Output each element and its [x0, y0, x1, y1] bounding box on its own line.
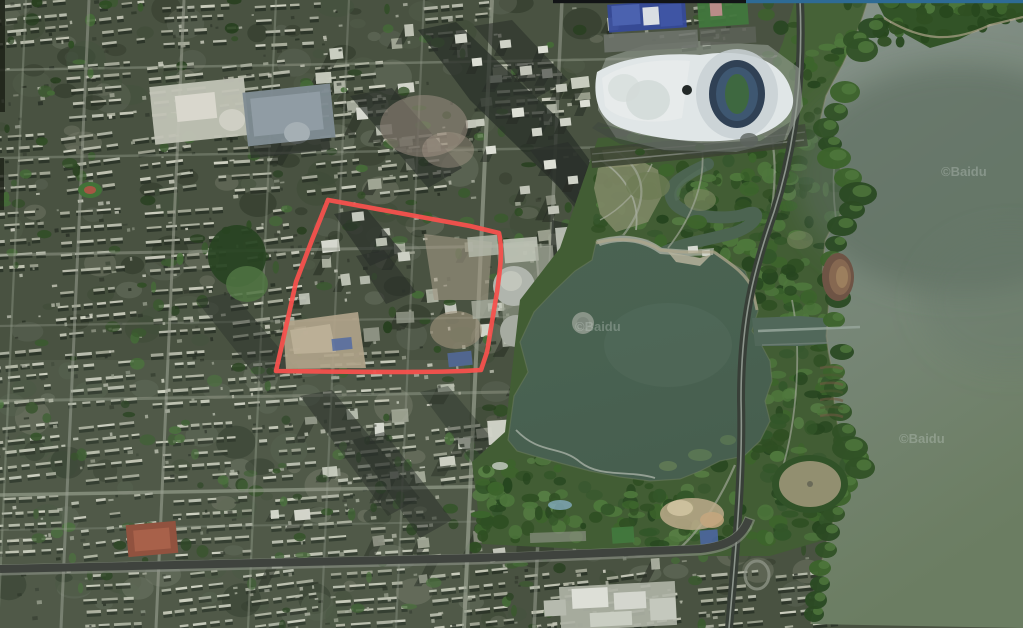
svg-text:©Baidu: ©Baidu: [941, 164, 987, 179]
svg-text:©Baidu: ©Baidu: [575, 319, 621, 334]
svg-text:©Baidu: ©Baidu: [899, 431, 945, 446]
